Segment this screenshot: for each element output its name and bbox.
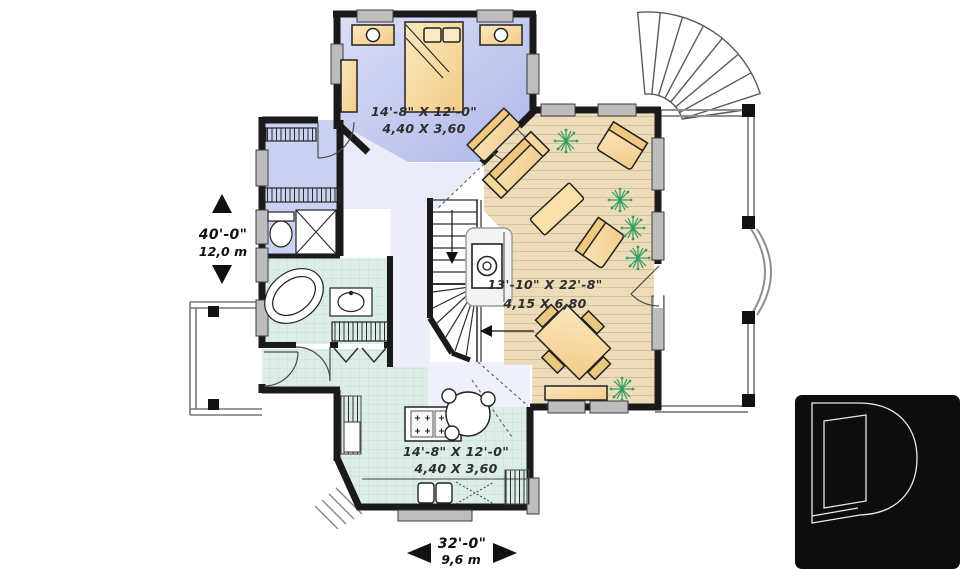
window <box>590 401 628 413</box>
height-imperial: 40'-0" <box>198 227 247 243</box>
linen-closet-hatch <box>332 322 388 341</box>
width-imperial: 32'-0" <box>438 536 486 552</box>
stair-arrow-down <box>446 210 458 264</box>
corner-counter-hatch <box>505 470 529 504</box>
sideboard <box>545 386 607 400</box>
dresser <box>341 60 357 112</box>
width-metric: 9,6 m <box>441 552 481 567</box>
curved-entry-stair <box>638 12 761 119</box>
bed-pillow <box>443 28 460 42</box>
arrow-down-icon <box>212 265 232 284</box>
vanity-sink <box>330 288 372 316</box>
hall-floor-mid <box>390 209 430 367</box>
height-metric: 12,0 m <box>199 244 247 259</box>
window <box>256 150 268 186</box>
window <box>256 248 268 282</box>
bedroom-dim-imperial: 14'-8" X 12'-0" <box>371 104 477 119</box>
porch-posts <box>208 306 219 410</box>
wood-stove <box>466 228 512 306</box>
floor-plan-drawing: 14'-8" X 12'-0" 4,40 X 3,60 13'-10" X 22… <box>0 0 960 569</box>
lamp-icon <box>495 29 508 42</box>
appliance <box>344 422 360 452</box>
shower <box>296 210 336 254</box>
bed-pillow <box>424 28 441 42</box>
lamp-icon <box>367 29 380 42</box>
arrow-left-icon <box>407 543 431 563</box>
bedroom-dim-metric: 4,40 X 3,60 <box>381 121 465 136</box>
veranda-railing <box>655 104 771 412</box>
living-dim-imperial: 13'-10" X 22'-8" <box>487 277 602 292</box>
toilet <box>268 212 294 247</box>
window <box>548 401 585 413</box>
arrow-right-icon <box>493 543 517 563</box>
window <box>652 138 664 190</box>
window <box>477 10 513 22</box>
closet-rod-hatch <box>264 188 342 202</box>
window <box>652 212 664 260</box>
window <box>541 104 575 116</box>
floor-plan-canvas: 14'-8" X 12'-0" 4,40 X 3,60 13'-10" X 22… <box>0 0 960 569</box>
window <box>598 104 636 116</box>
kitchen-dim-imperial: 14'-8" X 12'-0" <box>403 444 509 459</box>
dimension-vertical: 40'-0" 12,0 m <box>198 194 247 284</box>
dimension-horizontal: 32'-0" 9,6 m <box>407 536 517 567</box>
window <box>256 210 268 244</box>
living-dim-metric: 4,15 X 6,80 <box>502 296 586 311</box>
side-porch <box>190 302 262 415</box>
publisher-logo <box>795 395 960 569</box>
arrow-up-icon <box>212 194 232 213</box>
window <box>527 54 539 94</box>
kitchen-dim-metric: 4,40 X 3,60 <box>413 461 497 476</box>
window <box>357 10 393 22</box>
closet-rod-hatch <box>266 128 316 141</box>
window-bay-ledge <box>398 510 472 521</box>
